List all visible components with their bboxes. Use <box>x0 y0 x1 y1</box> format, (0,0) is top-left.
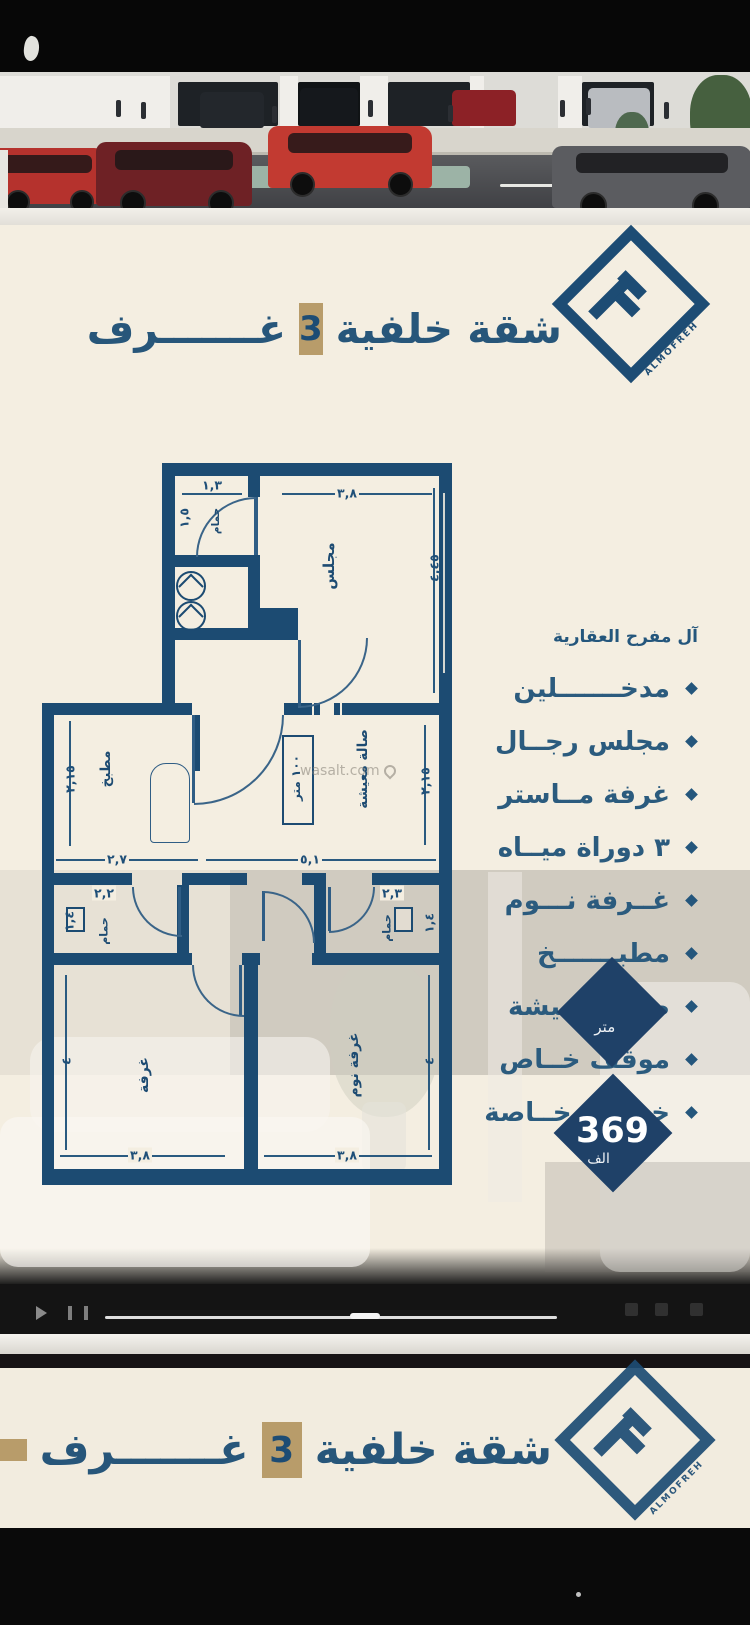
watermark-text: wasalt.com <box>300 763 380 779</box>
pedestrian <box>141 102 146 119</box>
wall-segment <box>42 703 54 1185</box>
photo-edge <box>0 150 8 208</box>
entry-stub <box>334 703 340 715</box>
title-row: شقة خلفية 3 غـــــــرف <box>0 1418 552 1482</box>
title-prefix: شقة خلفية <box>336 305 562 353</box>
title-bar <box>0 1439 27 1461</box>
room-label-bath-right: حمام <box>381 914 394 942</box>
company-name: آل مفرح العقارية <box>543 627 708 647</box>
building-pillar <box>360 76 388 132</box>
video-progress-bar[interactable] <box>105 1316 557 1319</box>
window-line <box>443 493 445 673</box>
rooms-count-badge: 3 <box>262 1422 302 1478</box>
title-prefix: شقة خلفية <box>315 1425 552 1475</box>
main-panel: ALMOFREH آل مفرح العقارية شقة خلفية 3 غـ… <box>0 225 750 1284</box>
pedestrian <box>272 106 277 123</box>
building-pillar <box>280 76 298 132</box>
door-arc <box>298 638 368 708</box>
separator <box>0 1334 750 1354</box>
door-arc <box>263 891 315 943</box>
diamond-bullet-icon <box>685 1000 698 1013</box>
door-arc <box>196 497 256 557</box>
wall-segment <box>42 873 132 885</box>
title-row: شقة خلفية 3 غـــــــرف <box>126 298 562 360</box>
dimension-label: ٤,٤٥ <box>427 552 442 584</box>
building-exterior-photo <box>0 72 750 208</box>
wall-segment <box>242 953 260 965</box>
feature-item: مدخـــــــلين <box>420 662 732 715</box>
area-badge-unit: متر <box>594 1018 615 1036</box>
wall-segment <box>162 628 260 640</box>
kitchen-counter <box>150 763 190 843</box>
feature-label: غرفة مــاستر <box>498 780 670 810</box>
pause-icon[interactable] <box>68 1306 88 1320</box>
title-suffix: غـــــــرف <box>40 1425 249 1475</box>
pedestrian <box>560 100 565 117</box>
parked-car <box>452 90 516 126</box>
room-label-room: غرفة <box>136 1057 152 1093</box>
map-pin-icon <box>381 763 398 780</box>
room-label-bath-top: حمام <box>210 508 222 534</box>
feature-item: غرفة مــاستر <box>420 768 732 821</box>
watermark: wasalt.com <box>300 763 396 779</box>
wall-segment <box>302 873 326 885</box>
price-badge: 369 الف <box>555 1075 670 1190</box>
rooms-count-badge: 3 <box>299 303 323 355</box>
bottom-panel: ALMOFREH شقة خلفية 3 غـــــــرف <box>0 1368 750 1528</box>
dimension-label: ٣,٨ <box>335 486 359 501</box>
feature-label: ٣ دوراة ميــاه <box>498 833 670 863</box>
wc-fixture-icon <box>176 601 206 631</box>
feature-item: غــرفة نـــوم <box>420 874 732 927</box>
feature-item: مجلس رجــال <box>420 715 732 768</box>
pedestrian <box>586 98 591 115</box>
separator <box>0 208 750 225</box>
dimension-label: ١,٥ <box>177 506 192 530</box>
dimension-label: ٢,٢ <box>92 886 116 901</box>
diamond-bullet-icon <box>685 841 698 854</box>
video-option-button[interactable] <box>690 1303 703 1316</box>
feature-label: غــرفة نـــوم <box>505 886 670 916</box>
red-suv <box>0 148 106 204</box>
diamond-bullet-icon <box>685 682 698 695</box>
maroon-suv <box>96 142 252 206</box>
toilet-fixture <box>394 907 413 932</box>
wall-segment <box>42 703 192 715</box>
diamond-bullet-icon <box>685 735 698 748</box>
diamond-bullet-icon <box>685 947 698 960</box>
wall-segment <box>162 463 452 476</box>
dimension-label: ١,٤ <box>62 909 77 933</box>
wall-segment <box>42 1169 452 1185</box>
dimension-label: ٣,٨ <box>128 1148 152 1163</box>
dimension-label: ٣,٨ <box>335 1148 359 1163</box>
feature-label: مدخـــــــلين <box>513 674 670 704</box>
floor-plan: ١٠٠ متر ١,٣ ١,٥ ٣,٨ ٤,٤٥ ٢,١٥ ٢,١٥ ٢,٧ ٥… <box>42 463 452 1185</box>
room-label-majlis: مجلس <box>320 542 338 589</box>
flyer-page: ALMOFREH آل مفرح العقارية شقة خلفية 3 غـ… <box>0 0 750 1625</box>
price-badge-value: 369 <box>555 1111 670 1151</box>
video-option-button[interactable] <box>625 1303 638 1316</box>
wall-segment <box>244 965 258 1185</box>
wall-segment <box>248 463 260 497</box>
wall-segment <box>42 953 192 965</box>
pedestrian <box>448 105 453 122</box>
dimension-label: ٢,٧ <box>105 852 129 867</box>
door-arc <box>132 887 182 937</box>
diamond-bullet-icon <box>685 788 698 801</box>
door-arc <box>194 715 284 805</box>
pedestrian <box>664 102 669 119</box>
parked-car <box>200 92 264 128</box>
company-logo: ALMOFREH <box>540 240 700 400</box>
wc-fixture-icon <box>176 571 206 601</box>
price-badge-unit: الف <box>587 1151 610 1167</box>
small-logo-mark-icon <box>22 35 40 62</box>
diamond-shape-icon <box>557 957 667 1067</box>
room-label-bedroom: غرفة نوم <box>346 1032 362 1097</box>
diamond-bullet-icon <box>685 894 698 907</box>
door-arc <box>192 965 244 1017</box>
feature-item: ٣ دوراة ميــاه <box>420 821 732 874</box>
wall-segment <box>162 463 175 705</box>
room-label-kitchen: مطبخ <box>98 751 114 788</box>
footer-dot <box>576 1592 581 1597</box>
diamond-bullet-icon <box>685 1106 698 1119</box>
dimension-label: ١,٣ <box>200 478 224 493</box>
dimension-label: ٥,١ <box>298 852 322 867</box>
pedestrian <box>116 100 121 117</box>
red-suv-center <box>268 126 432 188</box>
footer-black-band <box>0 1528 750 1625</box>
area-badge: متر <box>557 957 667 1067</box>
wall-segment <box>182 873 247 885</box>
title-suffix: غـــــــرف <box>87 305 286 353</box>
top-black-bar <box>0 0 750 72</box>
room-label-bath-left: حمام <box>98 917 111 945</box>
door-post <box>248 608 298 640</box>
dimension-label: ٢,٣ <box>380 886 404 901</box>
play-icon[interactable] <box>36 1306 47 1320</box>
door-arc <box>329 887 375 933</box>
features-list: مدخـــــــلين مجلس رجــال غرفة مــاستر ٣… <box>420 662 732 1139</box>
dimension-label: ٤ <box>59 1055 74 1067</box>
dim-line <box>182 493 242 495</box>
parked-car <box>300 88 358 128</box>
gray-suv <box>552 146 750 208</box>
pedestrian <box>368 100 373 117</box>
feature-label: مجلس رجــال <box>495 727 670 757</box>
dimension-label: ٢,١٥ <box>63 763 78 795</box>
diamond-bullet-icon <box>685 1053 698 1066</box>
video-option-button[interactable] <box>655 1303 668 1316</box>
video-scrubber[interactable] <box>350 1313 380 1319</box>
company-logo: ALMOFREH <box>545 1373 705 1533</box>
wall-segment <box>314 885 326 953</box>
